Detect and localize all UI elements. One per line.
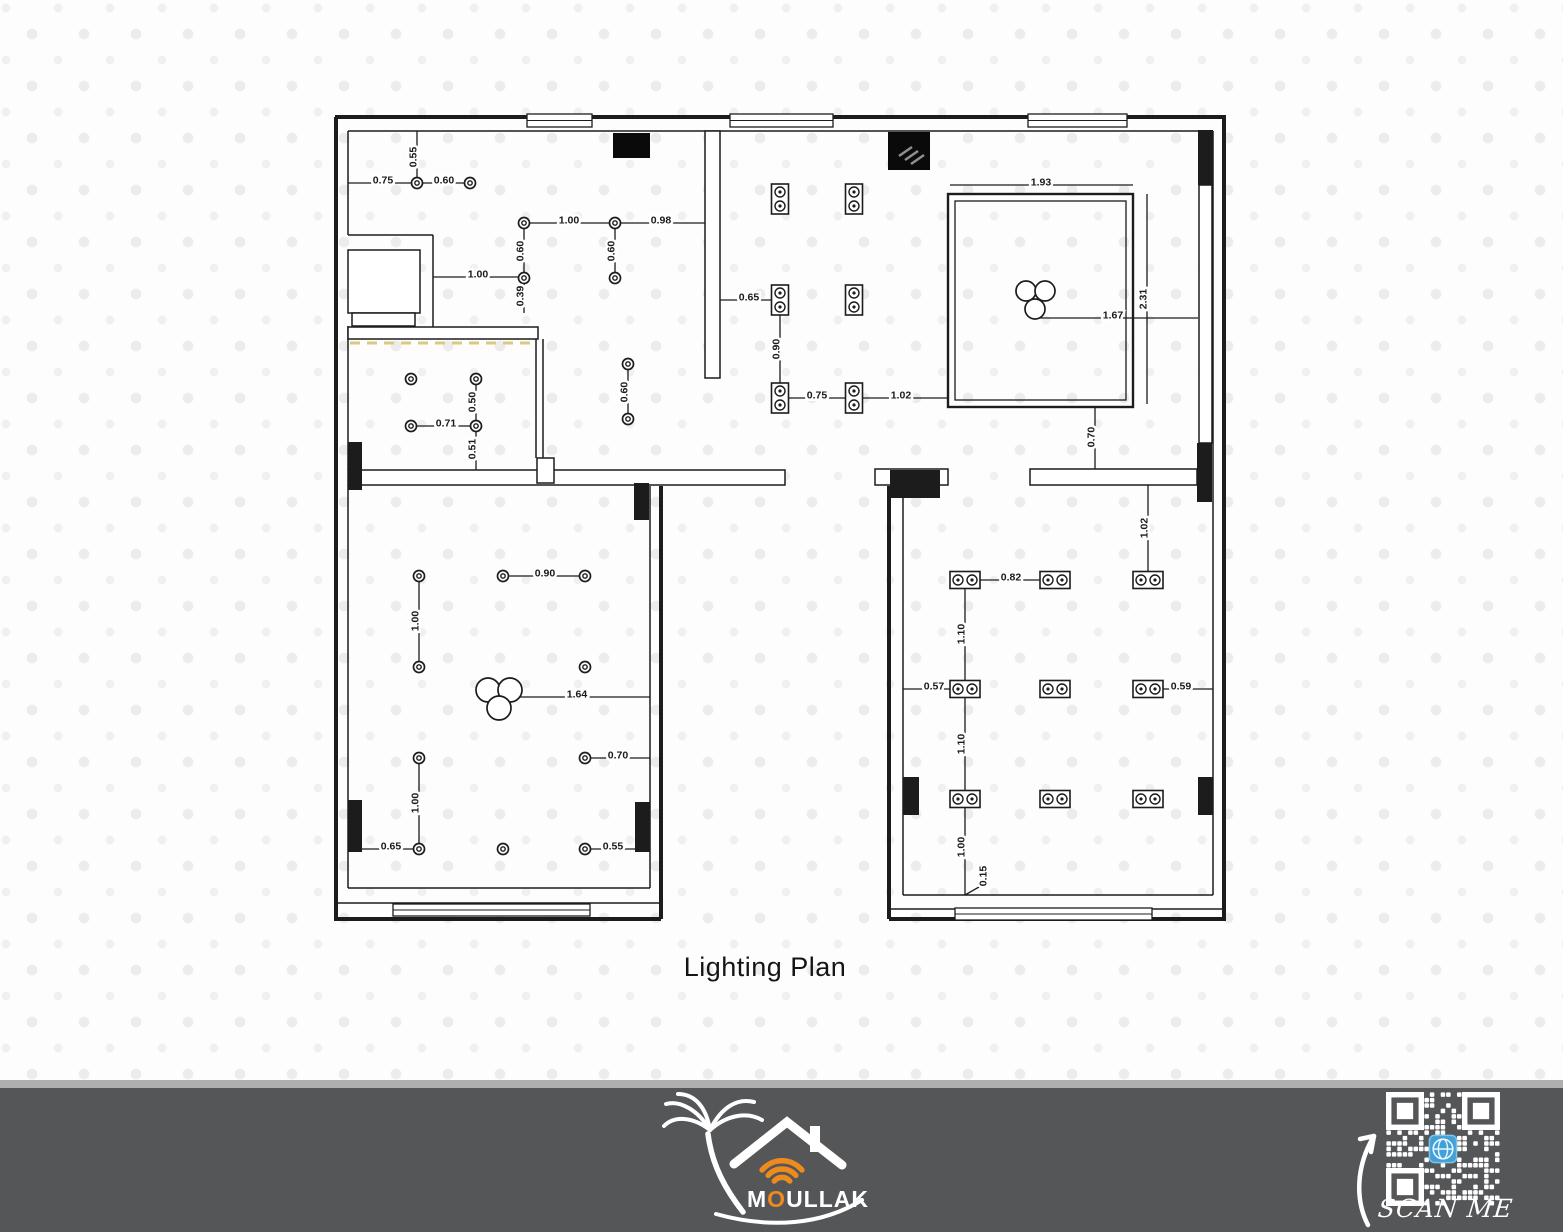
lighting-plan-drawing: 0.550.750.601.000.980.600.601.000.390.60… xyxy=(0,0,1563,1080)
scan-me-label: SCAN ME xyxy=(1376,1194,1509,1223)
svg-text:1.02: 1.02 xyxy=(1139,518,1151,539)
qr-code xyxy=(1386,1092,1500,1206)
svg-text:1.00: 1.00 xyxy=(410,793,422,814)
brand-name: MOULLAK xyxy=(747,1186,869,1212)
columns-layer xyxy=(348,130,1213,852)
drawing-title: Lighting Plan xyxy=(615,952,915,983)
svg-text:0.98: 0.98 xyxy=(651,215,672,227)
page: 0.550.750.601.000.980.600.601.000.390.60… xyxy=(0,0,1563,1232)
svg-text:0.65: 0.65 xyxy=(381,841,402,853)
svg-text:1.00: 1.00 xyxy=(559,215,580,227)
svg-text:0.90: 0.90 xyxy=(771,339,783,360)
brand-letter-m: M xyxy=(747,1186,767,1212)
svg-text:0.57: 0.57 xyxy=(924,681,945,693)
dimension-lines xyxy=(348,131,1213,895)
svg-text:0.39: 0.39 xyxy=(515,286,527,307)
svg-text:0.75: 0.75 xyxy=(373,175,394,187)
fixtures-layer xyxy=(406,178,1164,855)
svg-text:1.00: 1.00 xyxy=(410,611,422,632)
svg-text:0.59: 0.59 xyxy=(1171,681,1192,693)
brand-letter-o: O xyxy=(767,1186,786,1212)
svg-text:0.71: 0.71 xyxy=(436,418,457,430)
svg-text:1.00: 1.00 xyxy=(956,837,968,858)
svg-text:1.67: 1.67 xyxy=(1103,310,1124,322)
brand-logo: MOULLAK xyxy=(650,1082,900,1232)
svg-text:1.10: 1.10 xyxy=(956,624,968,645)
svg-text:2.31: 2.31 xyxy=(1138,289,1150,310)
dimension-labels: 0.550.750.601.000.980.600.601.000.390.60… xyxy=(373,147,1192,887)
svg-text:0.60: 0.60 xyxy=(619,382,631,403)
svg-text:0.65: 0.65 xyxy=(739,292,760,304)
windows-layer xyxy=(393,114,1152,920)
svg-text:0.82: 0.82 xyxy=(1001,572,1022,584)
wifi-arcs-icon xyxy=(762,1161,802,1181)
brand-letters-rest: ULLAK xyxy=(786,1186,869,1212)
svg-text:0.51: 0.51 xyxy=(467,439,479,460)
chandelier-fixture xyxy=(1016,281,1055,319)
svg-text:0.60: 0.60 xyxy=(434,175,455,187)
ac-units-layer xyxy=(613,132,930,170)
walls-layer xyxy=(335,117,1226,921)
svg-text:0.90: 0.90 xyxy=(535,568,556,580)
svg-text:0.55: 0.55 xyxy=(603,841,624,853)
curved-arrow-icon xyxy=(1352,1122,1388,1230)
svg-text:1.10: 1.10 xyxy=(956,734,968,755)
svg-text:0.15: 0.15 xyxy=(978,866,990,887)
svg-text:0.70: 0.70 xyxy=(1086,427,1098,448)
svg-text:1.00: 1.00 xyxy=(468,269,489,281)
svg-text:0.60: 0.60 xyxy=(606,241,618,262)
svg-text:0.75: 0.75 xyxy=(807,390,828,402)
chandelier-fixture xyxy=(476,678,522,720)
svg-text:0.70: 0.70 xyxy=(608,750,629,762)
svg-text:1.93: 1.93 xyxy=(1031,177,1052,189)
svg-text:1.02: 1.02 xyxy=(891,390,912,402)
svg-text:0.55: 0.55 xyxy=(408,147,420,168)
svg-text:1.64: 1.64 xyxy=(567,689,588,701)
svg-text:0.60: 0.60 xyxy=(515,241,527,262)
svg-text:0.50: 0.50 xyxy=(467,392,479,413)
